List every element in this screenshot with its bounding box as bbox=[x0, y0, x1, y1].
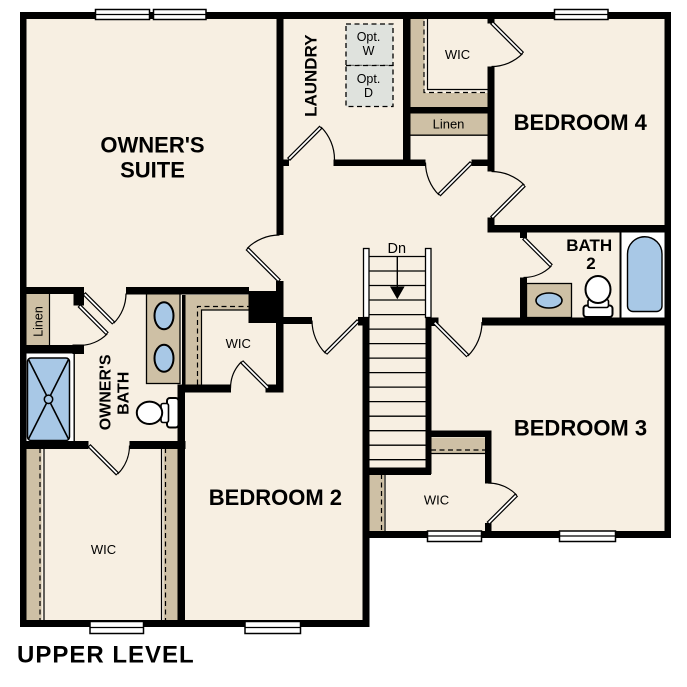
svg-text:WIC: WIC bbox=[445, 47, 470, 62]
svg-text:BEDROOM 3: BEDROOM 3 bbox=[514, 416, 647, 441]
svg-text:WIC: WIC bbox=[424, 492, 449, 507]
svg-text:W: W bbox=[363, 44, 375, 58]
svg-text:UPPER LEVEL: UPPER LEVEL bbox=[17, 642, 195, 669]
svg-text:BEDROOM 4: BEDROOM 4 bbox=[514, 110, 648, 135]
svg-text:Opt.: Opt. bbox=[357, 30, 381, 44]
svg-text:SUITE: SUITE bbox=[120, 158, 185, 183]
svg-text:WIC: WIC bbox=[226, 336, 251, 351]
svg-text:D: D bbox=[364, 86, 373, 100]
svg-text:Opt.: Opt. bbox=[357, 72, 381, 86]
svg-text:BATH: BATH bbox=[566, 236, 612, 255]
svg-text:LAUNDRY: LAUNDRY bbox=[301, 34, 320, 117]
svg-text:Linen: Linen bbox=[32, 306, 46, 337]
svg-text:Dn: Dn bbox=[388, 241, 407, 257]
svg-text:BATH: BATH bbox=[115, 372, 132, 415]
svg-text:OWNER'S: OWNER'S bbox=[100, 132, 204, 157]
svg-text:2: 2 bbox=[586, 254, 595, 273]
svg-text:WIC: WIC bbox=[91, 542, 116, 557]
svg-text:OWNER'S: OWNER'S bbox=[97, 354, 114, 430]
svg-text:BEDROOM 2: BEDROOM 2 bbox=[209, 485, 342, 510]
svg-text:Linen: Linen bbox=[433, 117, 465, 132]
